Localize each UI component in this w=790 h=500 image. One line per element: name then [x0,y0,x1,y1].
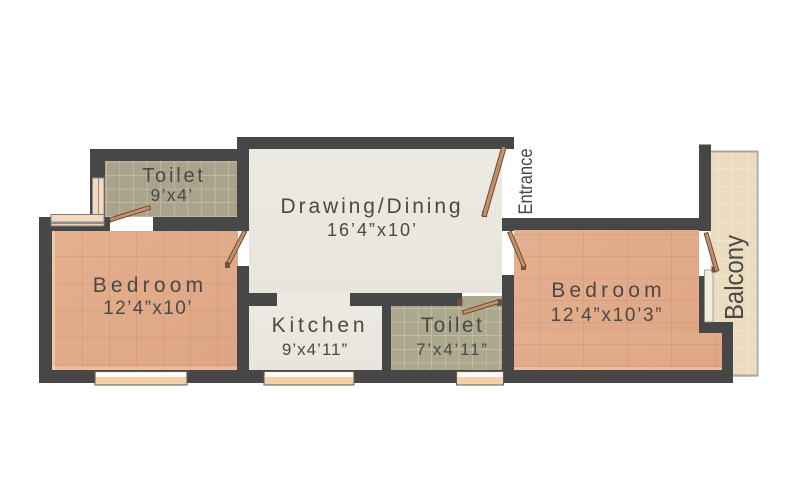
svg-text:16’4”x10’: 16’4”x10’ [327,220,418,240]
svg-text:Entrance: Entrance [515,148,536,214]
svg-text:12’4”x10’: 12’4”x10’ [103,298,193,319]
svg-text:12’4”x10’3”: 12’4”x10’3” [551,305,664,326]
svg-text:Toilet: Toilet [142,165,206,187]
svg-text:Kitchen: Kitchen [272,314,369,337]
svg-text:Drawing/Dining: Drawing/Dining [281,195,464,218]
svg-text:Bedroom: Bedroom [551,279,666,302]
svg-text:9’x4’: 9’x4’ [151,185,194,205]
svg-text:Bedroom: Bedroom [93,274,208,297]
svg-text:9’x4’11”: 9’x4’11” [282,340,348,359]
svg-text:Toilet: Toilet [421,314,484,337]
svg-text:7’x4’11”: 7’x4’11” [416,340,489,359]
svg-text:Balcony: Balcony [720,234,749,320]
